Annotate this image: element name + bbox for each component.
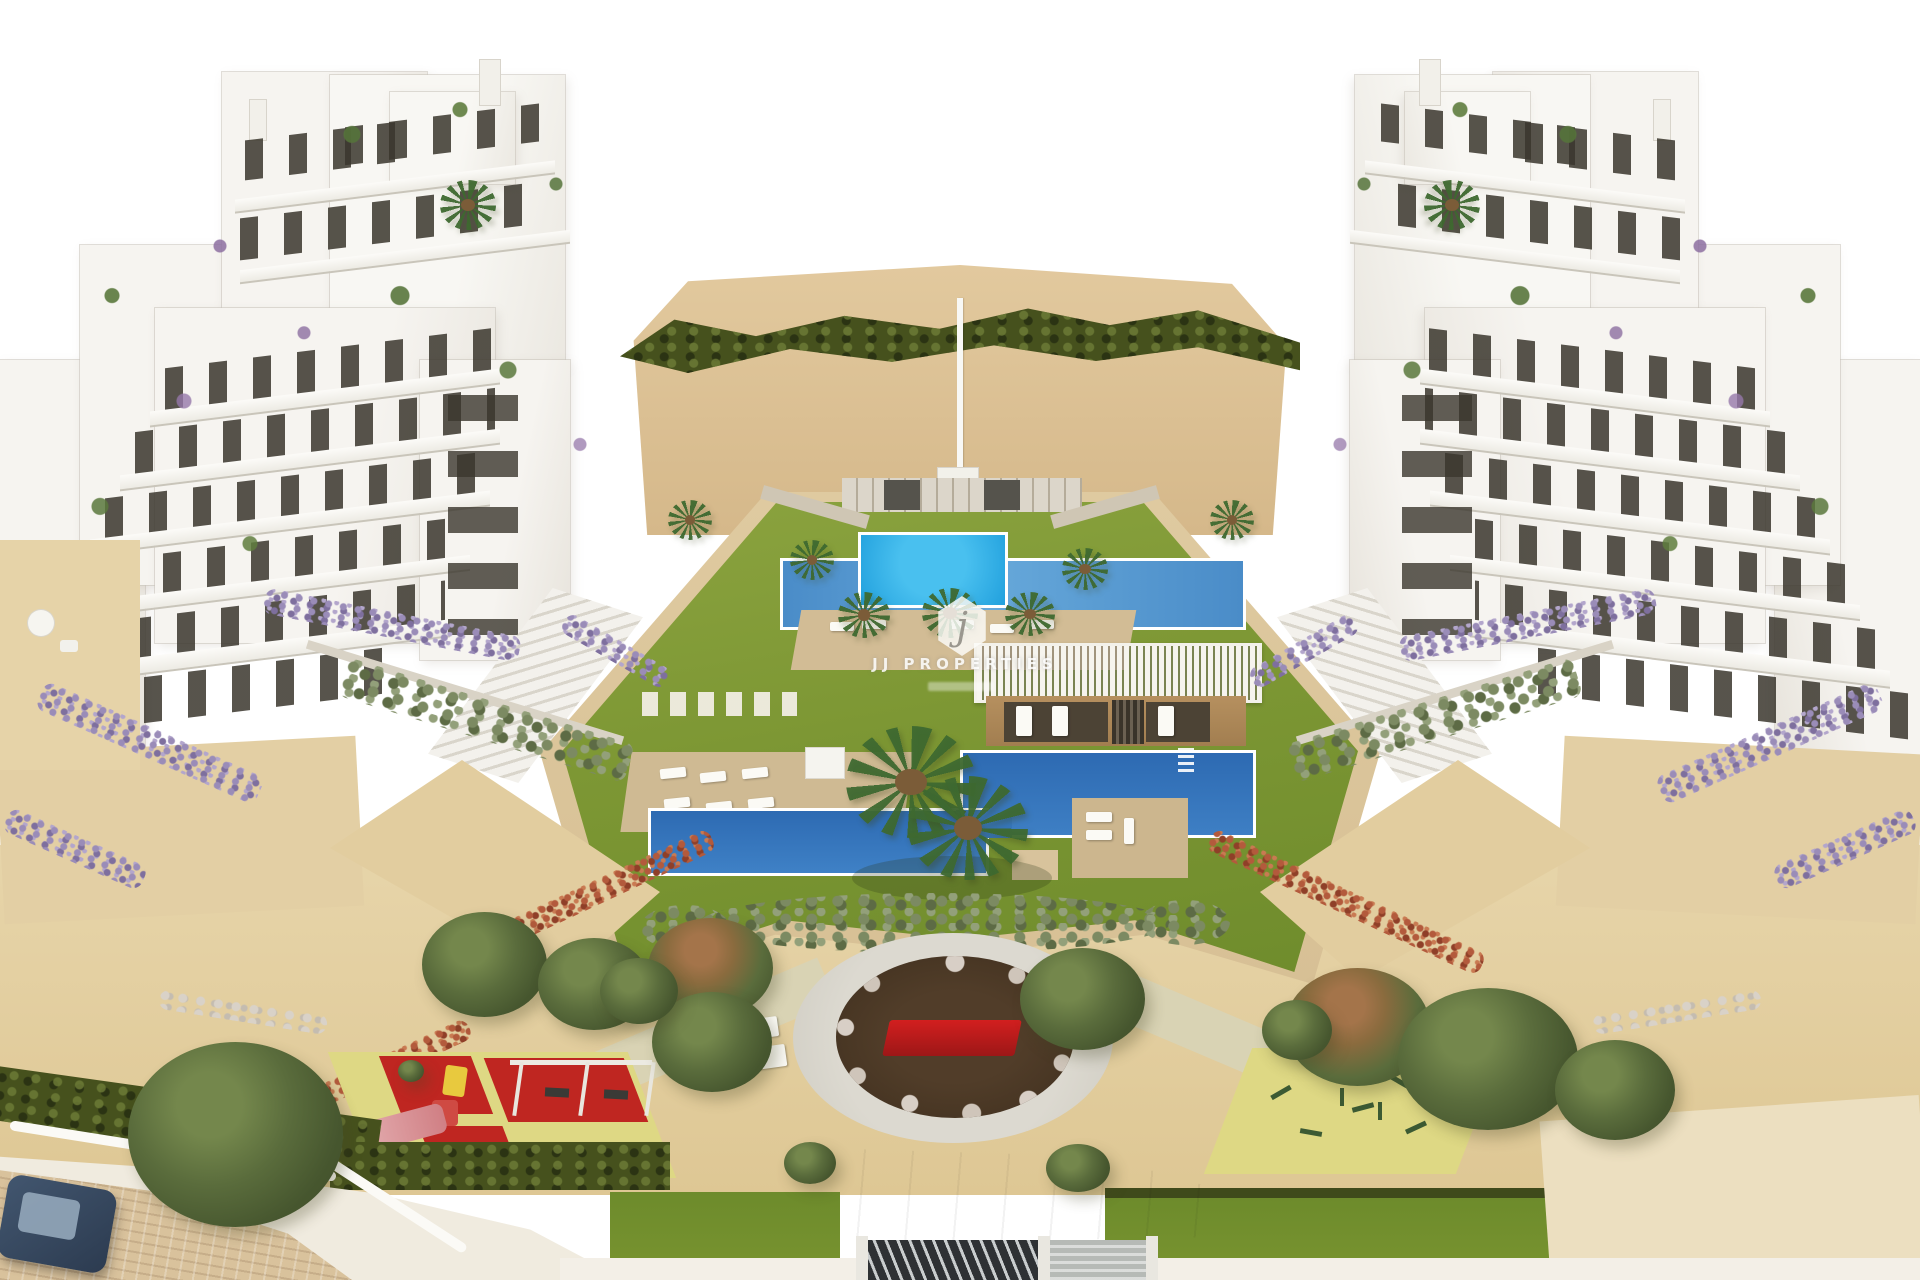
- pool-ladder-icon: [1178, 746, 1194, 772]
- entrance-gate-panel: [984, 480, 1020, 510]
- cabana-lounger: [1016, 706, 1032, 736]
- flag-pole: [957, 298, 963, 493]
- cabana-lounger: [1158, 706, 1174, 736]
- garden-parasol: [28, 610, 54, 636]
- stone-wall: [842, 478, 1082, 512]
- watermark-brand-text: JJ PROPERTIES: [860, 655, 1070, 677]
- palm-tree-icon: [790, 540, 834, 580]
- olive-tree: [1398, 988, 1578, 1130]
- rooftop-palm-icon: [440, 180, 496, 230]
- aerial-render-scene: j JJ PROPERTIES: [0, 0, 1920, 1280]
- rooftop-palm-icon: [1424, 180, 1480, 230]
- bottom-walkway: [560, 1258, 1920, 1280]
- gate-pillar: [1146, 1236, 1158, 1280]
- gate-bush: [784, 1142, 836, 1184]
- gate-dark-panel: [868, 1240, 1038, 1280]
- swing-seat: [604, 1089, 628, 1099]
- fitness-post: [1340, 1088, 1344, 1106]
- olive-tree: [128, 1042, 343, 1227]
- palm-tree-icon: [1062, 548, 1108, 590]
- large-palm-icon: [908, 776, 1028, 880]
- play-toy: [442, 1065, 468, 1098]
- watermark-logo-letter: j: [956, 607, 968, 645]
- palm-tree-icon: [1005, 592, 1055, 636]
- olive-tree: [1020, 948, 1145, 1050]
- pool-house-opening: [1146, 702, 1210, 742]
- pool-house-slatted-gap: [1112, 700, 1144, 744]
- small-tree: [600, 958, 678, 1024]
- sun-lounger: [1086, 812, 1112, 822]
- stepping-stone-path: [642, 692, 797, 716]
- palm-tree-icon: [838, 592, 890, 638]
- gate-pillar: [1038, 1236, 1050, 1280]
- cabana-lounger: [1052, 706, 1068, 736]
- hedge-band: [330, 1142, 670, 1190]
- palm-tree-icon: [668, 500, 712, 540]
- red-bench: [882, 1020, 1022, 1056]
- swing-frame-bar: [510, 1060, 652, 1065]
- fitness-post: [1378, 1102, 1382, 1120]
- gate-pillar: [856, 1236, 868, 1280]
- entrance-gate-panel: [884, 480, 920, 510]
- sun-lounger: [1086, 830, 1112, 840]
- sun-lounger: [1124, 818, 1134, 844]
- small-tree: [1262, 1000, 1332, 1060]
- olive-tree: [1555, 1040, 1675, 1140]
- rooftop-plants: [1280, 60, 1880, 680]
- pool-bar-cabinet: [806, 748, 844, 778]
- watermark-subline: [928, 682, 994, 691]
- gate-bush: [1046, 1144, 1110, 1192]
- palm-tree-icon: [1210, 500, 1254, 540]
- garden-table: [60, 640, 78, 652]
- olive-tree: [422, 912, 547, 1017]
- playground-bush: [398, 1060, 424, 1082]
- swing-seat: [545, 1087, 569, 1097]
- shrub-cluster: [1140, 900, 1230, 945]
- gate-light-panel: [1050, 1240, 1146, 1280]
